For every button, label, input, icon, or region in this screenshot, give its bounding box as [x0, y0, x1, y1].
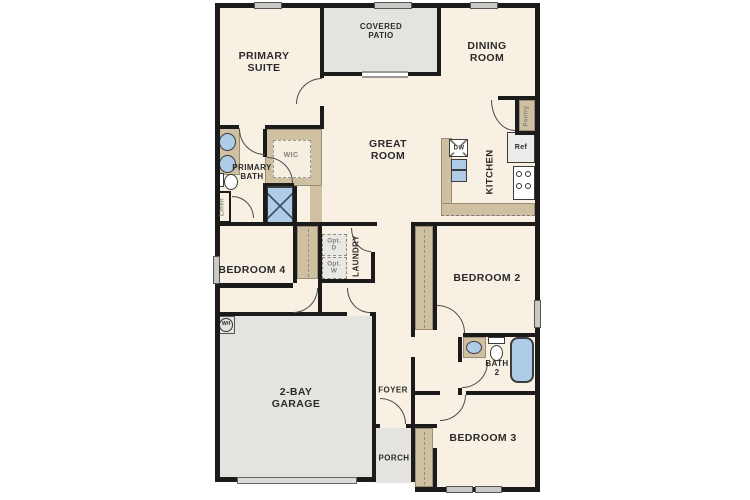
refrigerator-label: Ref	[515, 144, 527, 152]
wall	[437, 3, 441, 76]
wall	[265, 125, 324, 129]
room-label-bedroom2: BEDROOM 2	[453, 272, 520, 284]
room-label-linen: Linen	[220, 198, 227, 216]
window	[534, 300, 541, 328]
wall	[458, 337, 462, 362]
wall	[458, 388, 462, 395]
wall	[215, 312, 347, 316]
kitchen-counter-bottom	[441, 203, 535, 216]
toilet-tank-icon	[488, 337, 505, 344]
closet-rod-line	[424, 230, 425, 328]
burner-icon	[525, 183, 531, 189]
wall	[433, 448, 437, 487]
bedroom3-closet	[415, 428, 433, 487]
room-label-porch: PORCH	[379, 453, 410, 462]
wall	[324, 72, 362, 76]
window	[374, 2, 412, 9]
wall	[411, 222, 540, 226]
room-label-primary-bath: PRIMARY BATH	[232, 163, 271, 181]
room-label-great-room: GREAT ROOM	[369, 138, 407, 162]
burner-icon	[516, 183, 522, 189]
wall	[372, 312, 376, 482]
window	[254, 2, 282, 9]
dishwasher-label: DW	[453, 146, 466, 153]
wall	[293, 186, 297, 226]
wall	[535, 3, 540, 492]
room-label-bedroom3: BEDROOM 3	[449, 432, 516, 444]
garage-door	[237, 477, 357, 484]
wall	[411, 424, 415, 482]
sliding-glass-door	[362, 71, 408, 78]
room-label-primary-suite: PRIMARY SUITE	[239, 50, 290, 74]
wall	[318, 226, 322, 283]
wall	[515, 131, 540, 135]
closet-rod-line	[424, 432, 425, 485]
wall	[515, 100, 519, 135]
room-label-garage: 2-BAY GARAGE	[272, 386, 321, 410]
room-label-foyer: FOYER	[378, 385, 408, 394]
wall	[263, 183, 267, 226]
wall	[318, 279, 375, 283]
wall	[215, 3, 220, 482]
floor-plan: DW Ref WH Opt. D Opt. W	[0, 0, 750, 500]
bath2-sink-icon	[466, 341, 482, 354]
shower-icon	[266, 186, 294, 226]
window	[470, 2, 498, 9]
wall	[215, 477, 237, 482]
range-icon	[513, 166, 535, 200]
room-label-bath2: BATH 2	[485, 359, 508, 377]
bath-sink-icon	[219, 133, 236, 151]
room-label-wic: WIC	[284, 152, 299, 160]
bathtub-icon	[510, 337, 534, 383]
window	[446, 486, 473, 493]
mask-below-garage	[213, 482, 372, 500]
wall	[318, 283, 322, 312]
wic-side-band	[310, 186, 322, 224]
burner-icon	[516, 171, 522, 177]
wall	[320, 3, 324, 78]
room-label-laundry: LAUNDRY	[351, 235, 360, 277]
wall	[466, 391, 540, 395]
optional-dryer-label: Opt. D	[327, 238, 341, 253]
room-label-pantry: Pantry	[524, 105, 531, 126]
window	[475, 486, 502, 493]
wall	[293, 226, 297, 283]
wall	[372, 424, 380, 428]
kitchen-sink-basin	[451, 170, 467, 182]
wall	[215, 283, 293, 288]
room-label-kitchen: KITCHEN	[486, 149, 497, 194]
kitchen-sink-basin	[451, 159, 467, 170]
wall	[463, 333, 540, 337]
burner-icon	[525, 171, 531, 177]
water-heater-label: WH	[222, 322, 230, 328]
mask-below-porch	[372, 483, 413, 500]
room-label-covered-patio: COVERED PATIO	[360, 22, 402, 40]
optional-washer-label: Opt. W	[327, 261, 341, 276]
bedroom4-closet	[297, 226, 318, 279]
bedroom2-closet	[415, 226, 433, 330]
wall	[267, 183, 294, 186]
wall	[411, 222, 415, 337]
room-label-bedroom4: BEDROOM 4	[218, 264, 285, 276]
room-label-dining-room: DINING ROOM	[467, 40, 506, 64]
wall	[215, 125, 239, 129]
wall	[415, 424, 437, 428]
wall	[411, 391, 440, 395]
closet-rod-line	[308, 229, 309, 277]
